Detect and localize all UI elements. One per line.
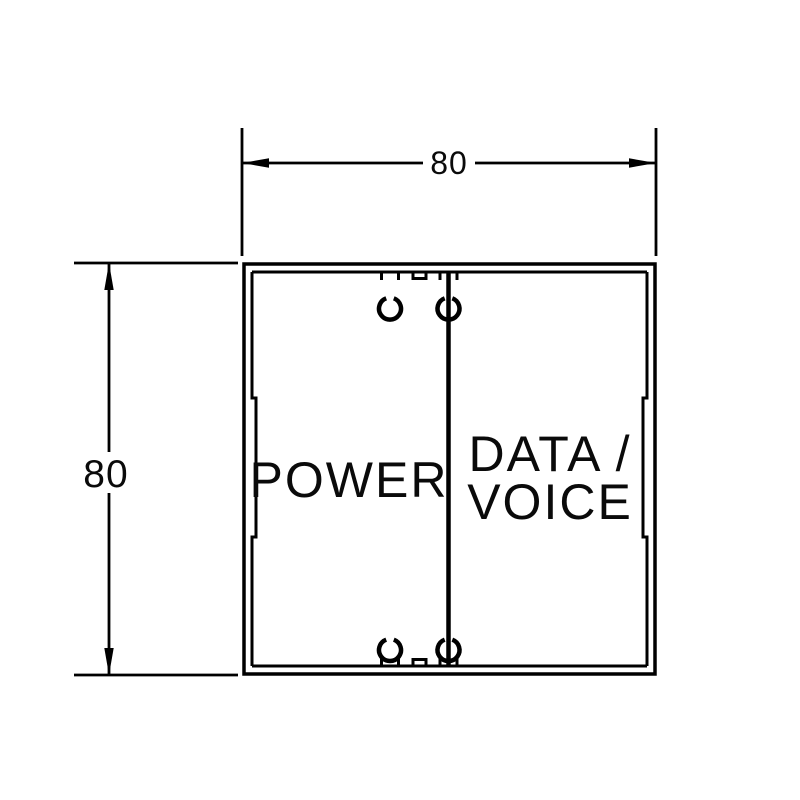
trunking-cross-section-drawing: 80 80 [0, 0, 800, 800]
clip-ring-bottom-left [379, 640, 401, 661]
width-dimension: 80 [242, 128, 656, 256]
height-dimension: 80 [74, 263, 238, 675]
width-dimension-value: 80 [430, 145, 468, 181]
clip-ring-top-left [379, 298, 401, 319]
arrowhead-right-icon [629, 158, 656, 167]
arrowhead-up-icon [104, 263, 113, 290]
compartment-labels: POWER DATA / VOICE [250, 426, 633, 530]
drawing-canvas: 80 80 [0, 0, 800, 800]
data-voice-compartment-label-line2: VOICE [467, 474, 633, 530]
power-compartment-label: POWER [250, 452, 449, 508]
inner-wall-right [643, 272, 647, 666]
arrowhead-left-icon [242, 158, 269, 167]
height-dimension-value: 80 [83, 453, 128, 496]
arrowhead-down-icon [104, 648, 113, 675]
